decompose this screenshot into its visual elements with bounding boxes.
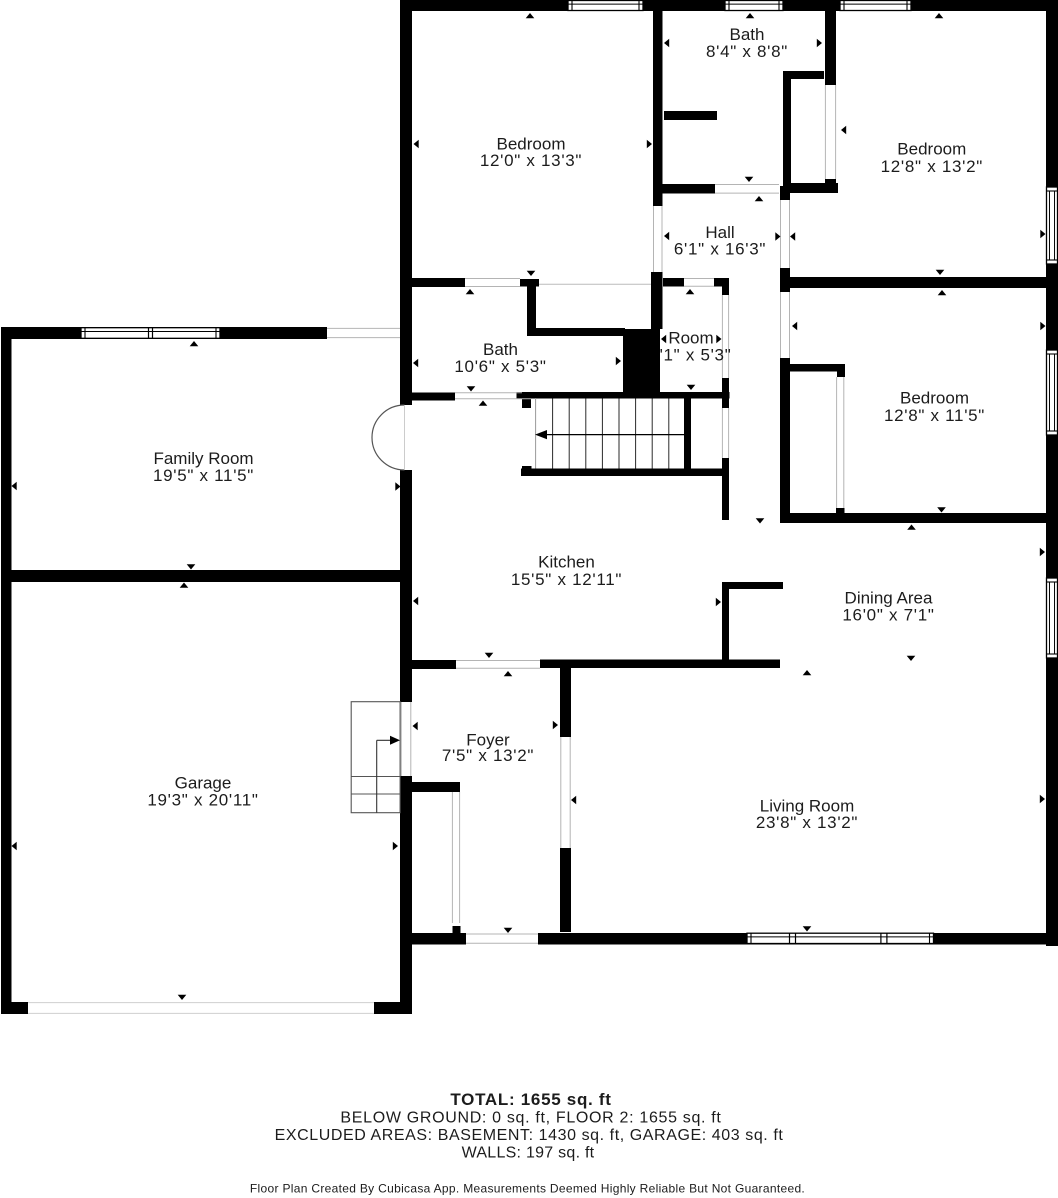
svg-text:WALLS: 197 sq. ft: WALLS: 197 sq. ft	[462, 1145, 595, 1162]
svg-text:BELOW GROUND: 0 sq. ft, FLOOR: BELOW GROUND: 0 sq. ft, FLOOR 2: 1655 sq…	[340, 1110, 721, 1127]
svg-text:19'5" x 11'5": 19'5" x 11'5"	[153, 466, 254, 485]
svg-text:TOTAL: 1655 sq. ft: TOTAL: 1655 sq. ft	[450, 1090, 611, 1109]
svg-text:19'3" x 20'11": 19'3" x 20'11"	[147, 791, 258, 810]
svg-text:6'1" x 16'3": 6'1" x 16'3"	[674, 240, 766, 259]
svg-text:Bedroom: Bedroom	[900, 389, 969, 408]
svg-text:10'6" x 5'3": 10'6" x 5'3"	[454, 357, 546, 376]
svg-text:12'0" x 13'3": 12'0" x 13'3"	[480, 151, 582, 170]
svg-text:12'8" x 11'5": 12'8" x 11'5"	[884, 406, 985, 425]
svg-text:'1" x 5'3": '1" x 5'3"	[660, 346, 732, 365]
svg-text:8'4" x 8'8": 8'4" x 8'8"	[706, 42, 788, 61]
svg-text:16'0" x 7'1": 16'0" x 7'1"	[842, 606, 934, 625]
svg-text:12'8" x 13'2": 12'8" x 13'2"	[881, 157, 983, 176]
svg-text:15'5" x 12'11": 15'5" x 12'11"	[511, 570, 622, 589]
svg-text:Kitchen: Kitchen	[538, 553, 595, 572]
svg-text:Bedroom: Bedroom	[897, 140, 966, 159]
svg-text:23'8" x 13'2": 23'8" x 13'2"	[756, 813, 858, 832]
svg-text:7'5" x 13'2": 7'5" x 13'2"	[442, 746, 534, 765]
svg-text:Floor Plan Created By Cubicasa: Floor Plan Created By Cubicasa App. Meas…	[250, 1182, 805, 1196]
svg-text:EXCLUDED AREAS: BASEMENT: 1430: EXCLUDED AREAS: BASEMENT: 1430 sq. ft, G…	[275, 1127, 784, 1144]
